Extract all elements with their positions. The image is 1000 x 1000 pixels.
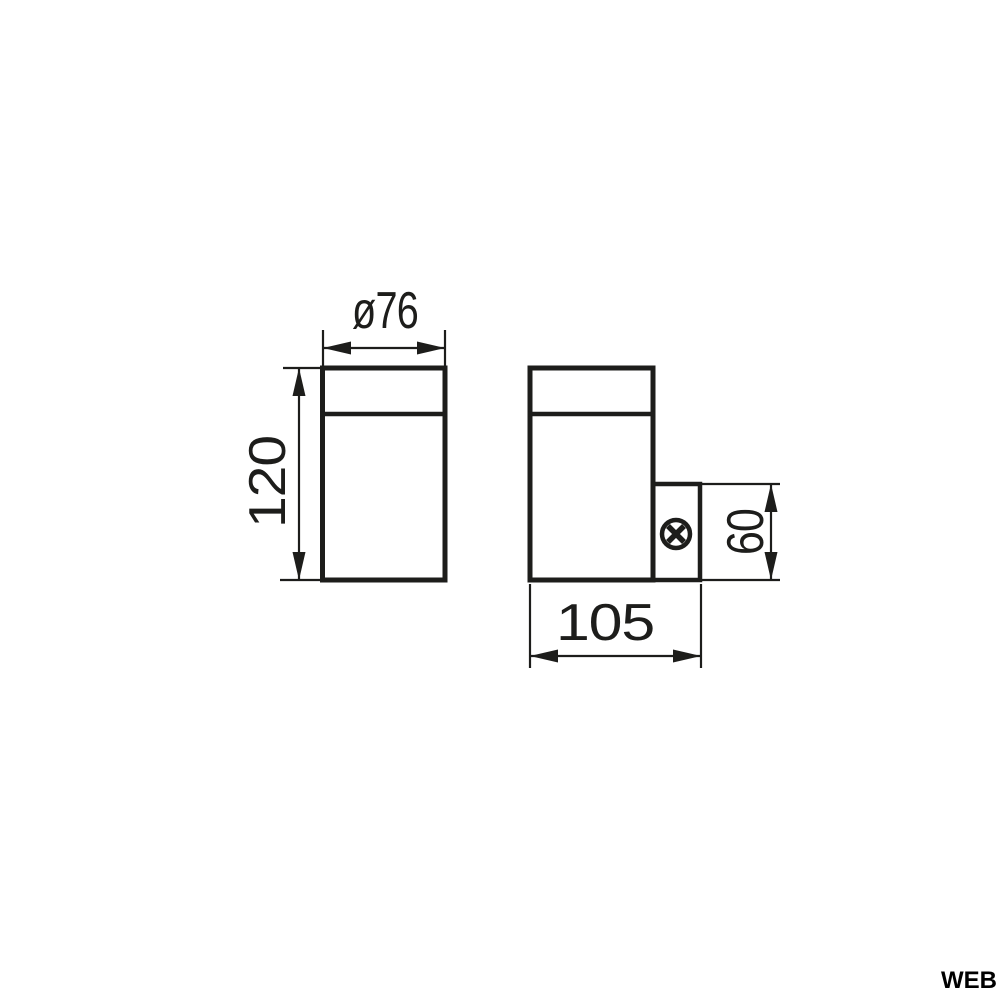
arrowhead-top: [293, 368, 306, 396]
arrowhead-bottom: [765, 552, 778, 580]
bracket-height-label: 60: [717, 509, 775, 555]
diameter-dimension: ø76: [323, 282, 445, 367]
depth-label: 105: [556, 594, 654, 652]
arrowhead-right: [417, 342, 445, 355]
front-view-body-outline: [323, 368, 446, 580]
bracket-height-dimension: 60: [702, 484, 780, 580]
watermark-label: WEB: [941, 969, 997, 993]
dimension-drawing: ø76 120: [0, 0, 1000, 1000]
height-label: 120: [239, 436, 297, 528]
technical-drawing-canvas: ø76 120: [0, 0, 1000, 1000]
height-dimension: 120: [239, 368, 320, 580]
arrowhead-left: [323, 342, 351, 355]
arrowhead-left: [530, 650, 558, 663]
diameter-label: ø76: [352, 282, 418, 340]
side-view-body-outline: [530, 368, 653, 580]
arrowhead-bottom: [293, 552, 306, 580]
screw-head-icon: [662, 520, 690, 548]
front-view: [320, 368, 448, 580]
arrowhead-right: [673, 650, 701, 663]
arrowhead-top: [765, 484, 778, 512]
depth-dimension: 105: [530, 584, 701, 668]
side-view: [528, 368, 701, 580]
